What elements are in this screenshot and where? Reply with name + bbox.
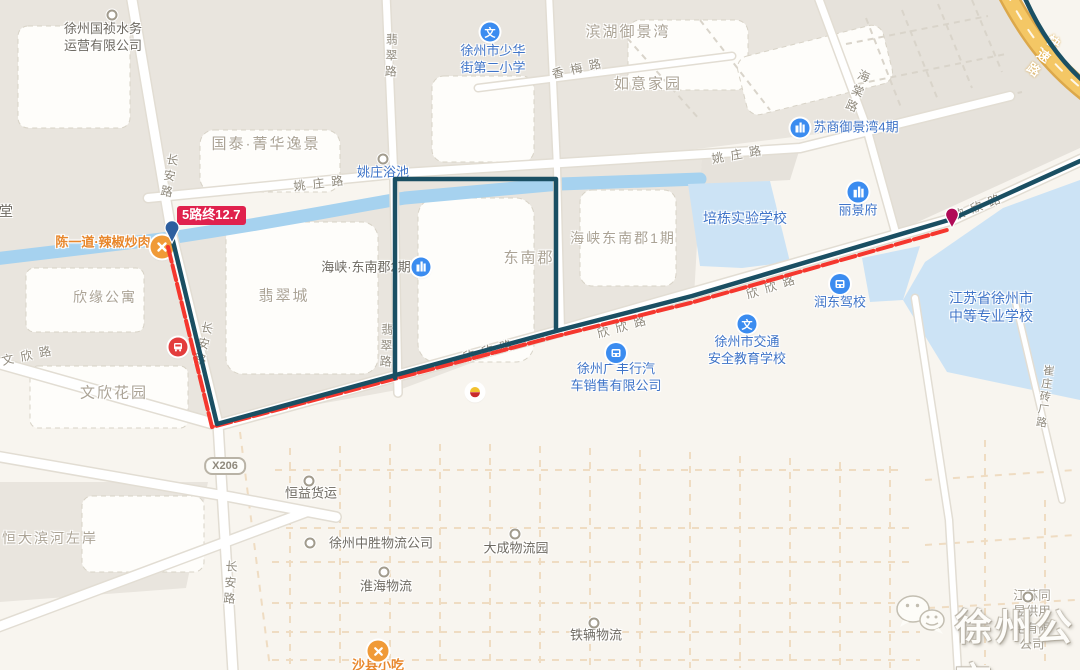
- poi-label-binhu[interactable]: 滨湖御景湾: [585, 22, 670, 42]
- route-terminus-badge[interactable]: 5路终12.7: [177, 206, 246, 225]
- school-icon[interactable]: 文: [738, 315, 757, 334]
- car-icon[interactable]: [830, 274, 850, 294]
- road-label-haitang: 海棠路: [840, 67, 872, 117]
- fork-knife-glyph: [156, 241, 169, 254]
- poi-dot-yaozhuang-bath[interactable]: [378, 154, 389, 165]
- poi-label-feicuicheng[interactable]: 翡翠城: [258, 286, 309, 306]
- restaurant-icon[interactable]: [151, 236, 174, 259]
- brand-logo-glyph: [469, 386, 482, 399]
- fork-knife-glyph: [372, 645, 384, 657]
- route-expressway-teal-line: [1024, 0, 1080, 80]
- road-label-yaozhuang-2: 姚庄路: [711, 142, 770, 167]
- poi-label-zhongsheng[interactable]: 徐州中胜物流公司: [329, 536, 433, 553]
- poi-label-ruyi[interactable]: 如意家园: [614, 74, 682, 94]
- pins-layer: [0, 0, 1080, 670]
- poi-label-yaozhuang-bath[interactable]: 姚庄浴池: [357, 165, 409, 182]
- poi-label-xinyuan[interactable]: 欣缘公寓: [73, 288, 137, 306]
- brand-logo-icon[interactable]: [467, 384, 484, 401]
- poi-label-haixia2[interactable]: 海峡·东南郡2期: [321, 260, 411, 277]
- bus-glyph: [173, 342, 184, 353]
- building-icon[interactable]: [412, 258, 431, 277]
- residential-blocks: [0, 0, 1080, 602]
- route-new-teal-loop: [395, 179, 556, 378]
- compound-shapes: [18, 20, 895, 572]
- poi-label-water-company[interactable]: 徐州国祯水务 运营有限公司: [64, 21, 142, 55]
- route-old-red-line: [168, 230, 947, 427]
- car-glyph: [610, 347, 622, 359]
- poi-label-jiangsu-school[interactable]: 江苏省徐州市 中等专业学校: [949, 289, 1033, 325]
- estate-lanes: [620, 0, 1022, 124]
- road-label-xinxin-2: 欣欣路: [595, 312, 654, 343]
- poi-label-lijingfu[interactable]: 丽景府: [838, 203, 877, 220]
- poi-label-hengyi[interactable]: 恒益货运: [285, 486, 337, 503]
- poi-dot-tieliang[interactable]: [589, 618, 600, 629]
- poi-label-hengda[interactable]: 恒大滨河左岸: [2, 529, 98, 547]
- road-label-changan-3: 长安路: [220, 560, 239, 609]
- poi-label-guotai[interactable]: 国泰·菁华逸景: [212, 134, 321, 154]
- road-label-cuizhuang: 崔庄砖厂路: [1032, 364, 1055, 430]
- school-icon[interactable]: 文: [481, 23, 500, 42]
- road-label-feicui-1: 翡翠路: [381, 33, 398, 82]
- end-pin-magenta[interactable]: [946, 208, 959, 228]
- poi-label-rundong[interactable]: 润东驾校: [814, 295, 866, 312]
- poi-label-traffic-school[interactable]: 徐州市交通 安全教育学校: [708, 334, 786, 368]
- poi-dot-zhongsheng[interactable]: [305, 538, 316, 549]
- poi-label-shaohua-school[interactable]: 徐州市少华 街第二小学: [460, 43, 525, 77]
- building-glyph: [795, 123, 806, 134]
- poi-dot-water-company[interactable]: [107, 10, 118, 21]
- river: [0, 179, 700, 259]
- poi-label-dongnanjun[interactable]: 东南郡: [503, 248, 554, 268]
- poi-dot-dacheng[interactable]: [510, 529, 521, 540]
- road-label-feicui-2: 翡翠路: [376, 323, 394, 372]
- expressway: [1006, 0, 1080, 92]
- poi-label-haixia1[interactable]: 海峡东南郡1期: [570, 229, 676, 247]
- poi-dot-hengyi[interactable]: [304, 476, 315, 487]
- car-icon[interactable]: [606, 343, 626, 363]
- road-label-xinxin-4: 欣欣路: [951, 190, 1010, 225]
- roads: [0, 0, 1080, 670]
- road-label-yaozhuang-1: 姚庄路: [293, 173, 351, 195]
- wechat-logo-icon: [893, 592, 953, 642]
- road-label-changan-1: 长安路: [156, 152, 180, 202]
- building-glyph: [852, 186, 864, 198]
- minor-lanes: [240, 432, 1075, 668]
- school-grounds: [688, 180, 1080, 400]
- road-label-wenxin: 文欣路: [0, 342, 59, 369]
- road-label-changan-2: 长安路: [189, 320, 214, 370]
- poi-label-tang: 堂: [0, 202, 13, 220]
- route-new-teal-line: [171, 161, 1080, 424]
- road-label-expressway: 快速路: [1019, 30, 1063, 81]
- bus-route-layer: [0, 0, 1080, 670]
- poi-label-sushang[interactable]: 苏商御景湾4期: [813, 120, 898, 137]
- restaurant-icon[interactable]: [368, 641, 389, 662]
- poi-label-chenyidao[interactable]: 陈一道·辣椒炒肉: [55, 235, 150, 252]
- road-label-xinxin-1: 欣欣路: [461, 336, 520, 366]
- map-base-layer: [0, 0, 1080, 670]
- building-glyph: [416, 262, 427, 273]
- poi-dot-huaihai[interactable]: [379, 567, 390, 578]
- poi-label-guangfeng[interactable]: 徐州广丰行汽 车销售有限公司: [570, 361, 661, 395]
- poi-label-wenxin-garden[interactable]: 文欣花园: [80, 383, 148, 403]
- road-label-xiangmei: 香梅路: [550, 55, 609, 83]
- bus-stop-icon[interactable]: [169, 338, 188, 357]
- car-glyph: [834, 278, 846, 290]
- road-label-xinxin-3: 欣欣路: [744, 271, 803, 303]
- building-icon[interactable]: [848, 182, 869, 203]
- watermark-brand: 徐州公交: [955, 597, 1080, 670]
- poi-label-tieliang[interactable]: 铁辆物流: [570, 628, 622, 645]
- poi-label-huaihai[interactable]: 淮海物流: [360, 579, 412, 596]
- building-icon[interactable]: [791, 119, 810, 138]
- map-canvas: 长安路 长安路 长安路 姚庄路 姚庄路 翡翠路 翡翠路 香梅路 海棠路 欣欣路 …: [0, 0, 1080, 670]
- poi-label-dacheng[interactable]: 大成物流园: [483, 541, 548, 558]
- poi-label-peidong[interactable]: 培栋实验学校: [703, 209, 787, 227]
- road-shield-x206: X206: [204, 457, 246, 475]
